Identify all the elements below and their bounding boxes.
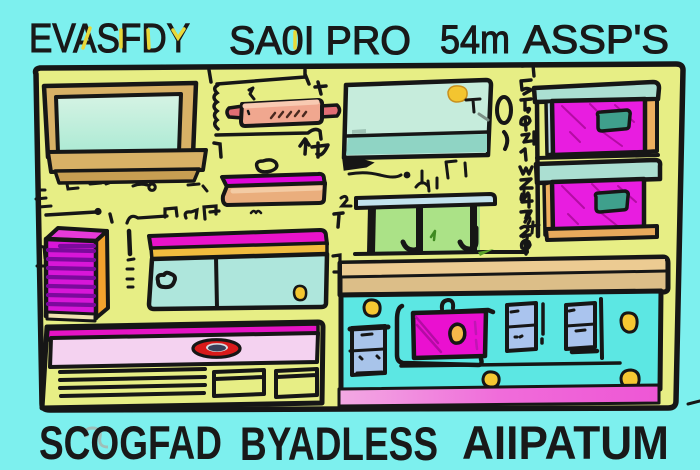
svg-text:EVASFDY: EVASFDY: [29, 15, 190, 61]
svg-text:ASSP'S: ASSP'S: [523, 18, 669, 62]
svg-text:54m: 54m: [440, 18, 510, 62]
svg-text:SCOGFAD: SCOGFAD: [39, 416, 222, 469]
svg-text:BYADLESS: BYADLESS: [240, 417, 438, 470]
svg-text:AIIPATUM: AIIPATUM: [462, 416, 669, 469]
svg-text:SA0I PRO: SA0I PRO: [229, 19, 411, 63]
